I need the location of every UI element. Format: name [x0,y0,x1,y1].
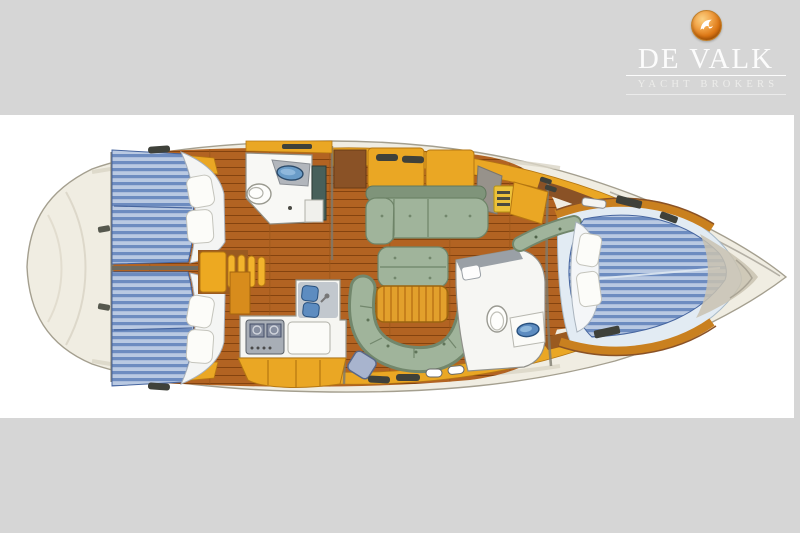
logo-divider-bottom [626,94,786,95]
port-aft-cabin [112,150,225,264]
pillow [185,294,215,329]
galley-sink [301,285,318,302]
heads-door [461,265,481,281]
settee-chaise [366,198,394,244]
window-slot [282,144,312,149]
pillow [576,271,603,308]
falcon-orb-icon [691,10,722,41]
window-slot [402,156,424,164]
brand-tagline: YACHT BROKERS [616,79,796,90]
brand-logo: DE VALK YACHT BROKERS [616,10,796,98]
galley-sink [302,302,319,318]
pillow [186,329,214,364]
worktop-fridge [288,322,330,354]
locker [368,148,424,188]
window-slot [396,374,420,381]
porthole [426,369,442,377]
pillow [186,174,216,209]
hanging-locker [334,150,366,188]
page: { "page": { "background_color": "#d6d6d6… [0,0,800,533]
heads-locker [305,200,323,222]
photo-canvas [0,115,794,418]
toilet [247,184,271,204]
yacht-layout-diagram [0,115,794,418]
logo-divider [626,75,786,76]
forward-heads [456,249,545,371]
drain [288,206,292,210]
toilet [487,306,507,332]
window-slot [368,375,390,383]
pillow [186,209,214,244]
porthole [448,365,465,375]
locker [426,150,474,188]
window-slot [148,382,170,391]
brand-name: DE VALK [616,44,796,74]
salon-table [376,286,448,322]
falcon-glyph [692,11,721,40]
galley-cupboard [230,272,250,314]
window-slot [376,154,398,161]
galley-cabinets [238,358,346,387]
